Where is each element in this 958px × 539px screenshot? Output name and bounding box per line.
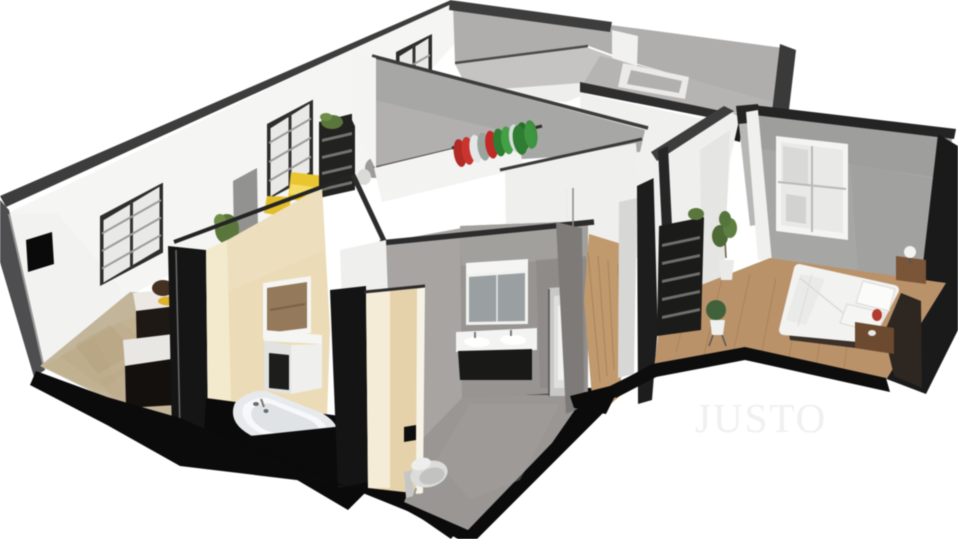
svg-text:JUSTO: JUSTO [695, 395, 827, 441]
